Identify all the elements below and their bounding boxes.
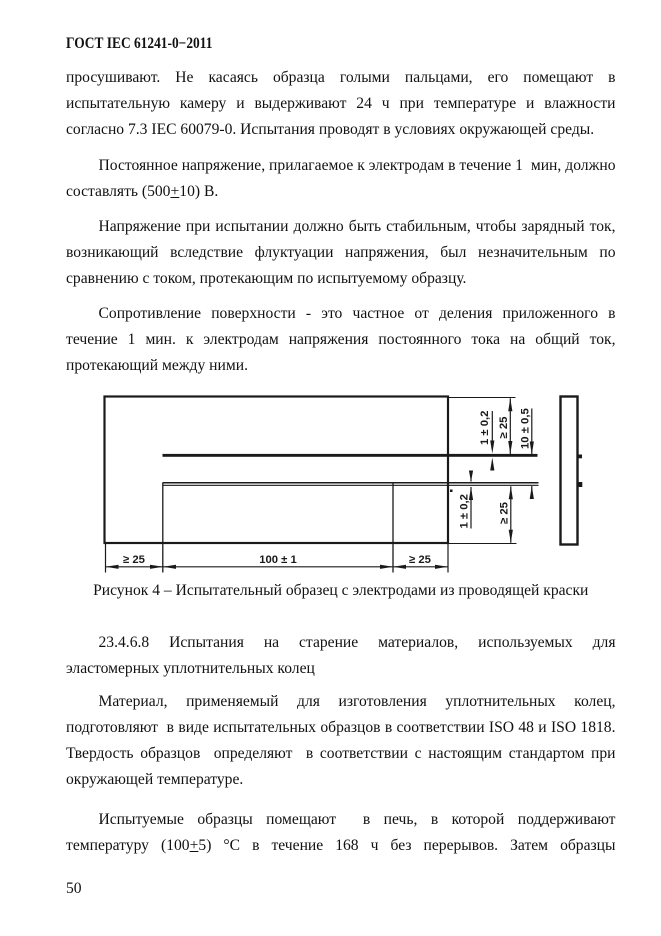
svg-text:≥ 25: ≥ 25 xyxy=(498,417,510,439)
svg-text:≥ 25: ≥ 25 xyxy=(123,554,145,566)
svg-text:100 ± 1: 100 ± 1 xyxy=(259,554,297,566)
svg-text:≥ 25: ≥ 25 xyxy=(498,502,510,524)
svg-text:1 ± 0,2: 1 ± 0,2 xyxy=(479,411,491,445)
svg-text:≥ 25: ≥ 25 xyxy=(409,554,431,566)
svg-text:1 ± 0,2: 1 ± 0,2 xyxy=(459,494,471,528)
svg-text:10 ± 0,5: 10 ± 0,5 xyxy=(520,408,532,449)
